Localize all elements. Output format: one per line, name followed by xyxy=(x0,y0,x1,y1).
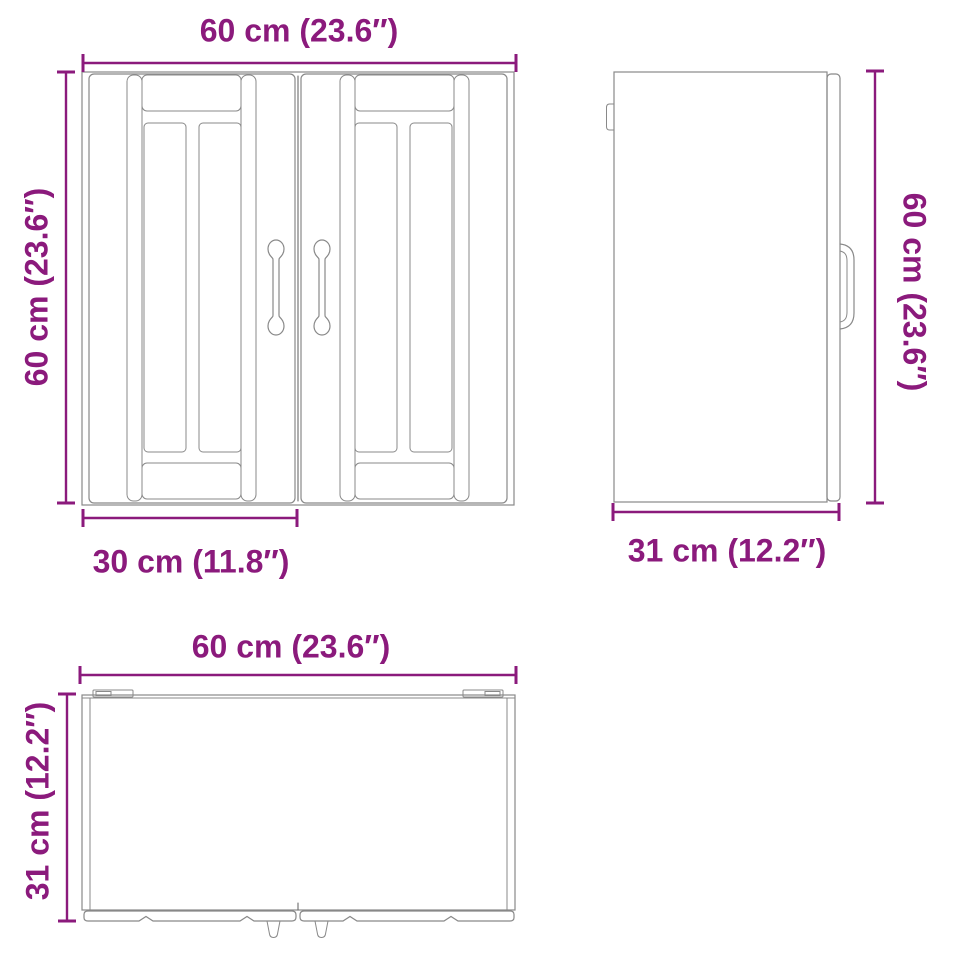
left-door-vertical-panel-2 xyxy=(199,123,241,452)
side-depth-dimension-line xyxy=(613,503,839,521)
dimension-lines xyxy=(57,54,884,921)
top-depth-label: 31 cm (12.2″) xyxy=(20,702,57,901)
left-door-vertical-panel-1 xyxy=(144,123,186,452)
top-hinge-plate-right xyxy=(463,690,503,697)
top-depth-dimension-line xyxy=(58,694,76,921)
cabinet-line-drawing xyxy=(0,0,955,955)
top-view xyxy=(82,690,515,938)
side-door-edge xyxy=(827,74,840,501)
left-door-groove-left xyxy=(127,75,142,501)
front-width-label: 60 cm (23.6″) xyxy=(200,13,399,50)
right-door-top-panel xyxy=(355,75,454,111)
side-cabinet-body xyxy=(614,72,827,502)
side-height-dimension-line xyxy=(866,71,884,503)
top-cabinet-body xyxy=(82,695,515,910)
top-handle-tab-left xyxy=(267,921,280,938)
side-view xyxy=(607,72,855,502)
top-left-door-strip xyxy=(84,911,296,921)
top-right-door-strip xyxy=(300,911,514,921)
front-door-width-dimension-line xyxy=(83,509,297,527)
front-right-door xyxy=(301,74,507,503)
dimension-diagram: 60 cm (23.6″) 60 cm (23.6″) 30 cm (11.8″… xyxy=(0,0,955,955)
side-hinge-icon xyxy=(607,104,615,130)
front-left-door xyxy=(89,74,295,503)
left-door-outline xyxy=(89,74,295,503)
front-view xyxy=(82,72,514,505)
right-door-groove-left xyxy=(340,75,355,501)
top-handle-tab-right xyxy=(315,921,328,938)
right-door-groove-right xyxy=(454,75,469,501)
front-door-width-label: 30 cm (11.8″) xyxy=(93,544,290,581)
top-hinge-plate-left xyxy=(93,690,133,697)
front-width-dimension-line xyxy=(83,54,516,72)
left-door-handle-icon xyxy=(268,240,284,335)
right-door-bottom-panel xyxy=(355,463,454,499)
side-height-label: 60 cm (23.6″) xyxy=(896,193,933,392)
right-door-vertical-panel-2 xyxy=(410,123,452,452)
top-width-dimension-line xyxy=(80,666,516,684)
top-width-label: 60 cm (23.6″) xyxy=(192,629,391,666)
front-height-label: 60 cm (23.6″) xyxy=(19,188,56,387)
left-door-groove-right xyxy=(241,75,256,501)
left-door-top-panel xyxy=(142,75,241,111)
side-depth-label: 31 cm (12.2″) xyxy=(628,533,827,570)
right-door-handle-icon xyxy=(314,240,330,335)
right-door-outline xyxy=(301,74,507,503)
side-handle-icon xyxy=(840,244,854,329)
right-door-vertical-panel-1 xyxy=(355,123,397,452)
front-height-dimension-line xyxy=(57,72,75,503)
left-door-bottom-panel xyxy=(142,463,241,499)
